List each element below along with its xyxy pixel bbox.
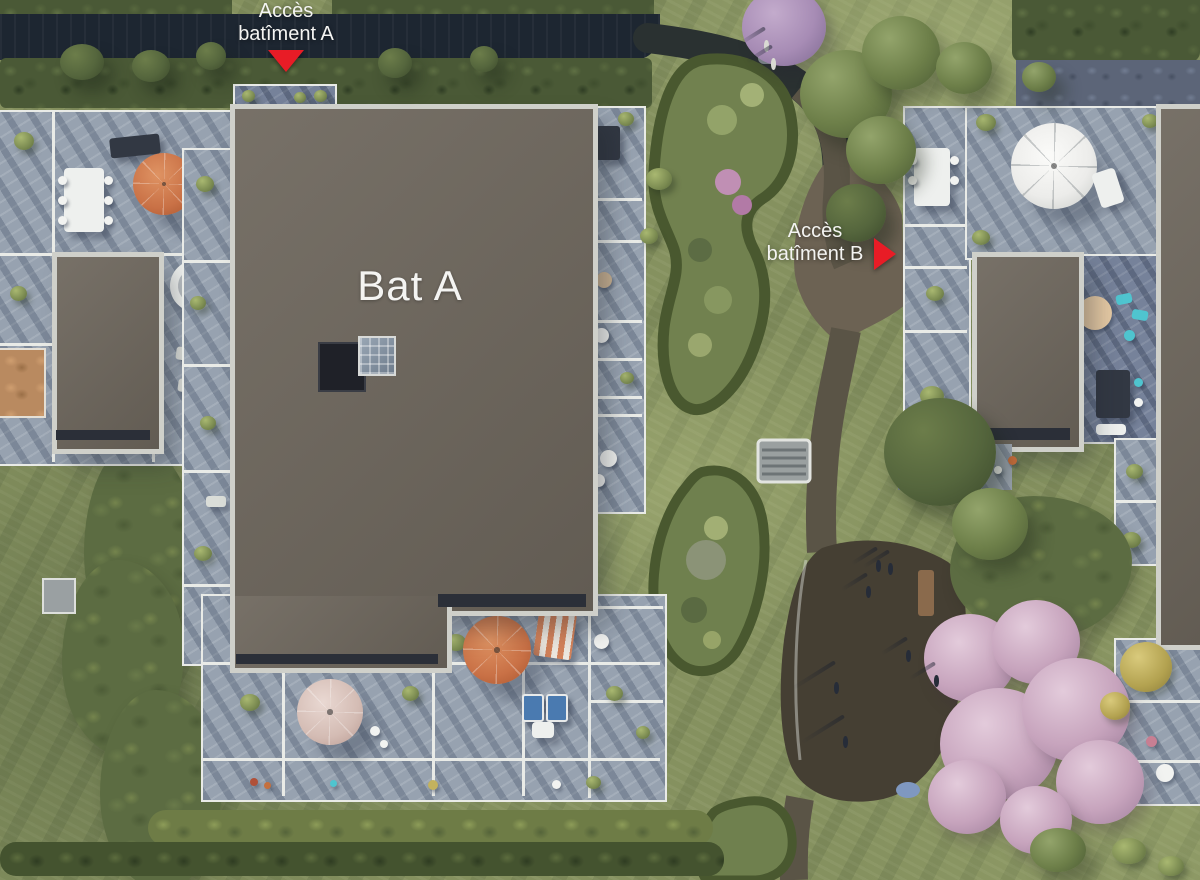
- chair: [104, 176, 113, 185]
- tree: [470, 46, 498, 72]
- chair: [908, 176, 917, 185]
- bush: [194, 546, 212, 561]
- access-b-label: Accès batîment B: [735, 220, 895, 266]
- chair: [58, 196, 67, 205]
- chair: [58, 176, 67, 185]
- bat-a-roof: [230, 104, 598, 616]
- flowers: [1146, 736, 1157, 747]
- tree: [862, 16, 940, 90]
- flowers: [264, 782, 271, 789]
- tree: [846, 116, 916, 184]
- chair: [950, 176, 959, 185]
- bush: [640, 228, 658, 244]
- flowers: [250, 778, 258, 786]
- bush: [636, 726, 650, 739]
- bush: [14, 132, 34, 150]
- utility-box: [42, 578, 76, 614]
- bush: [314, 90, 327, 102]
- chair: [104, 196, 113, 205]
- person: [834, 682, 839, 694]
- terrace-divider: [282, 664, 285, 796]
- access-a-label-line2: batîment A: [206, 23, 366, 46]
- bat-b-roof: [972, 252, 1084, 452]
- tree: [378, 48, 412, 78]
- wood-patio: [0, 348, 46, 418]
- access-b-marker-icon: [874, 238, 896, 270]
- bush: [976, 114, 996, 131]
- person: [843, 736, 848, 748]
- round-table: [1156, 764, 1174, 782]
- flowers: [428, 780, 438, 790]
- bush: [190, 296, 206, 310]
- person: [906, 650, 911, 662]
- chair: [950, 156, 959, 165]
- building-a-label: Bat A: [320, 262, 500, 310]
- pink-umbrella: [297, 679, 363, 745]
- person: [934, 675, 939, 687]
- terrace-divider: [432, 664, 435, 796]
- person: [866, 586, 871, 598]
- round-table: [600, 450, 617, 467]
- terrace-divider: [522, 664, 525, 796]
- chair: [104, 216, 113, 225]
- terrace-divider: [903, 330, 967, 333]
- bush: [620, 372, 634, 384]
- dining-set: [1096, 370, 1130, 418]
- lounger: [206, 496, 226, 507]
- terrace-divider: [903, 224, 967, 227]
- chair: [1134, 378, 1143, 387]
- roof-edge: [56, 430, 150, 440]
- terrace-divider: [1114, 500, 1162, 503]
- tree: [1022, 62, 1056, 92]
- terrace-divider: [0, 343, 52, 346]
- orange-umbrella: [463, 616, 531, 684]
- tree: [132, 50, 170, 82]
- dining-table: [914, 148, 950, 206]
- path-middle: [821, 330, 846, 552]
- bush: [586, 776, 601, 789]
- person: [888, 563, 893, 575]
- tree: [952, 488, 1028, 560]
- golden-shrub: [1100, 692, 1130, 720]
- flower-pot: [1008, 456, 1017, 465]
- access-a-marker-icon: [268, 50, 304, 72]
- golden-shrub: [1120, 642, 1172, 692]
- left-building-roof: [52, 252, 164, 454]
- roof-skylight: [358, 336, 396, 376]
- cherry-tree: [928, 760, 1006, 834]
- bush: [646, 168, 672, 190]
- blue-chair: [546, 694, 568, 722]
- bush: [242, 90, 255, 102]
- chair: [1134, 398, 1143, 407]
- bush: [926, 286, 944, 301]
- blue-tarp: [896, 782, 920, 798]
- roof-edge: [438, 594, 586, 607]
- dining-table: [64, 168, 104, 232]
- terrace-divider: [203, 758, 660, 761]
- access-b-label-line1: Accès: [735, 220, 895, 243]
- bush: [606, 686, 623, 701]
- bench: [1096, 424, 1126, 435]
- round-chair: [596, 272, 612, 288]
- table-set: [596, 126, 620, 160]
- person: [771, 58, 776, 70]
- bush: [10, 286, 27, 301]
- shrub: [1112, 838, 1146, 864]
- shrub: [1158, 856, 1184, 876]
- person: [876, 560, 881, 572]
- flowers: [330, 780, 337, 787]
- bush: [618, 112, 634, 126]
- tree: [1030, 828, 1086, 872]
- bush: [240, 694, 260, 711]
- bush: [402, 686, 419, 701]
- roof-edge: [236, 654, 438, 664]
- tree: [196, 42, 226, 70]
- flower-pot: [994, 466, 1002, 474]
- chair: [380, 740, 388, 748]
- bush: [200, 416, 216, 430]
- white-umbrella: [1011, 123, 1097, 209]
- hedge-row-olive: [148, 810, 713, 846]
- bush: [294, 92, 306, 103]
- round-table: [594, 634, 609, 649]
- teal-stool: [1124, 330, 1135, 341]
- bat-b-east-roof: [1156, 104, 1200, 650]
- terrace-divider: [903, 266, 967, 269]
- picnic-table: [758, 440, 810, 482]
- terrace-divider: [588, 700, 663, 703]
- chair: [58, 216, 67, 225]
- round-table: [552, 780, 561, 789]
- bush: [972, 230, 990, 245]
- park-bench: [918, 570, 934, 616]
- tree: [936, 42, 992, 94]
- access-a-label-line1: Accès: [206, 0, 366, 23]
- chair: [370, 726, 380, 736]
- bush: [196, 176, 214, 192]
- blue-chair: [522, 694, 544, 722]
- table: [532, 722, 554, 738]
- access-b-label-line2: batîment B: [735, 243, 895, 266]
- hedge-row-dark: [0, 842, 724, 876]
- site-plan: Accès batîment A Bat A Accès batîment B: [0, 0, 1200, 880]
- striped-loungers: [533, 610, 577, 661]
- bush: [1126, 464, 1143, 479]
- access-a-label: Accès batîment A: [206, 0, 366, 46]
- tree: [60, 44, 104, 80]
